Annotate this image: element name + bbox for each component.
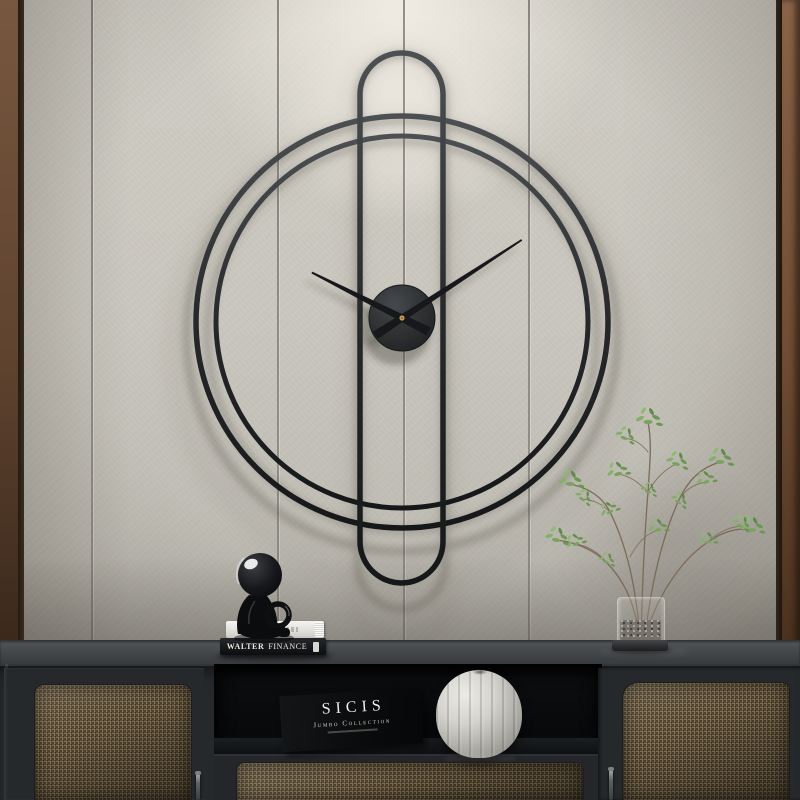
scene-photo: WALTER FINANCE SICIS Jumbo Collection [0, 0, 800, 800]
sicis-box: SICIS Jumbo Collection [279, 688, 423, 753]
pumpkin-vase-top-notch [472, 669, 488, 675]
figurine-foot [278, 628, 290, 637]
rattan-panel-left-door [34, 684, 192, 800]
door-handle-left [196, 774, 200, 800]
figurine [222, 546, 318, 646]
figurine-head [238, 553, 282, 597]
rattan-panel-drawer [236, 762, 584, 800]
sicis-caption-bar [328, 728, 378, 733]
pumpkin-vase-reflection [444, 754, 516, 762]
door-handle-right [609, 770, 613, 800]
pumpkin-vase-ribs [436, 670, 522, 758]
pumpkin-vase [436, 670, 522, 758]
rattan-panel-right-door [622, 682, 790, 800]
plant-leaves [544, 406, 766, 567]
plant-vase-glass [617, 597, 665, 643]
clock-center-pin-core [401, 317, 403, 319]
plant-vase-base [612, 640, 668, 651]
